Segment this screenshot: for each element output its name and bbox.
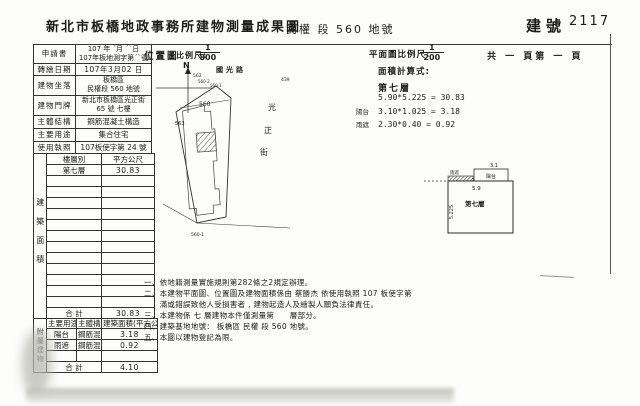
empty-row (47, 264, 102, 275)
balcony-dimension: 3.1 (490, 163, 498, 169)
note-2-cont: 滿或錯誤致他人受損害者 , 建物起造人及繪製人願負法律責任。 (144, 299, 474, 310)
annex-structure: 鋼筋混凝土造 (77, 329, 102, 340)
page-count-label: 共 一 頁第 一 頁 (487, 49, 584, 62)
floor-plan-drawing: 雨遮 陽台 3.1 5.9 5.225 第七層 (420, 160, 620, 290)
empty-row (47, 198, 102, 209)
road-label-guoguang: 國光路 (216, 65, 246, 74)
floor-column-header: 樓層別 (47, 154, 102, 165)
area-calculation-title: 面積計算式: (378, 65, 430, 77)
empty-row (47, 209, 102, 220)
note-4: 四、建築基地地號： 板橋區 民權 段 560 地號。 (144, 321, 474, 332)
annex-structure: 鋼筋混凝土造 (77, 340, 102, 351)
empty-row (47, 187, 102, 198)
subject-unit-hatched (196, 132, 216, 152)
annex-total-value: 4.10 (102, 362, 158, 373)
street-char-zheng: 正 (264, 126, 272, 135)
empty-row (47, 242, 102, 253)
street-edge-left (163, 204, 197, 223)
empty-row (47, 286, 102, 297)
building-footprint (182, 105, 221, 216)
calc-line-balcony: 陽台3.10*1.025 = 3.18 (356, 106, 460, 116)
empty-row (47, 297, 102, 308)
floor-cell: 第七層 (47, 165, 102, 176)
street-char-jie: 街 (260, 147, 268, 157)
plan-scale-fraction: 1 200 (420, 43, 444, 62)
land-section-label: 民權 段 560 地號 (286, 21, 395, 37)
empty-row (47, 231, 102, 242)
building-site-label: 建物坐落 (34, 75, 76, 95)
building-address-label: 建物門牌 (34, 95, 76, 115)
location-map-drawing: N 國光路 562 560-2 560-1 439 560 563 560-1 … (140, 44, 340, 244)
parcel-num-560-1-bottom: 560-1 (191, 232, 204, 238)
empty-row (47, 275, 102, 286)
annex-total-label: 合 計 (47, 362, 102, 373)
empty-row (47, 220, 102, 231)
redraw-date-label: 轉繪日期 (34, 63, 76, 75)
main-use-label: 主要用途 (34, 128, 76, 141)
building-number-value: 2117 (569, 14, 610, 29)
balcony-label: 陽台 (486, 173, 496, 180)
annex-row-balcony: 陽台 鋼筋混凝土造 3.18 (34, 329, 158, 340)
building-area-side-label: 建築面積 (34, 154, 47, 319)
calc-line-main: 5.90*5.225 = 30.83 (356, 93, 465, 102)
top-dimension: 5.9 (472, 186, 481, 192)
parcel-num-439: 439 (281, 77, 290, 83)
page-title: 新北市板橋地政事務所建物測量成果圖 (46, 16, 301, 35)
street-edge-bottom (197, 223, 290, 228)
calc-line-canopy: 雨遮2.30*0.40 = 0.92 (356, 119, 455, 129)
parcel-num-560: 560 (199, 101, 211, 108)
empty-row (47, 176, 102, 187)
annex-use: 陽台 (47, 329, 77, 340)
building-info-table: 申請書 107 年 ˊ月 ˊˋ日 107年板地測字第ˊˋ號 轉繪日期 107年3… (33, 44, 152, 155)
structure-label: 主體結構 (34, 115, 76, 128)
building-footprint-group (182, 105, 221, 216)
application-label: 申請書 (34, 45, 76, 64)
parcel-num-563: 563 (175, 121, 185, 127)
canopy-strip (448, 176, 473, 181)
note-5: 五、本圖以建物登記為限。 (144, 332, 474, 343)
parcel-num-560-2: 560-2 (198, 79, 210, 84)
building-area-table: 建築面積 樓層別 平方公尺 第七層 30.83 合 計 30.83 (33, 153, 155, 319)
empty-row (47, 253, 102, 264)
note-3: 三、本建物係 七 層建物本件僅測量第 層部分。 (144, 310, 474, 321)
scan-shadow-bottom (26, 388, 454, 403)
scan-shadow-corner (22, 330, 52, 394)
floor-plan-label: 第七層 (465, 199, 485, 208)
annex-use-header: 主要用途 (47, 319, 77, 329)
canopy-label: 雨遮 (450, 169, 459, 176)
parcel-num-560-1: 560-1 (210, 83, 222, 88)
left-dimension: 5.225 (449, 205, 455, 219)
building-number-label: 建號 (526, 15, 566, 36)
annex-row-canopy: 雨遮 鋼筋混凝土造 0.92 (34, 340, 158, 351)
annex-structure-header: 主體構造 (77, 319, 102, 329)
street-char-guang: 光 (268, 102, 276, 112)
area-total-label: 合 計 (47, 308, 102, 319)
